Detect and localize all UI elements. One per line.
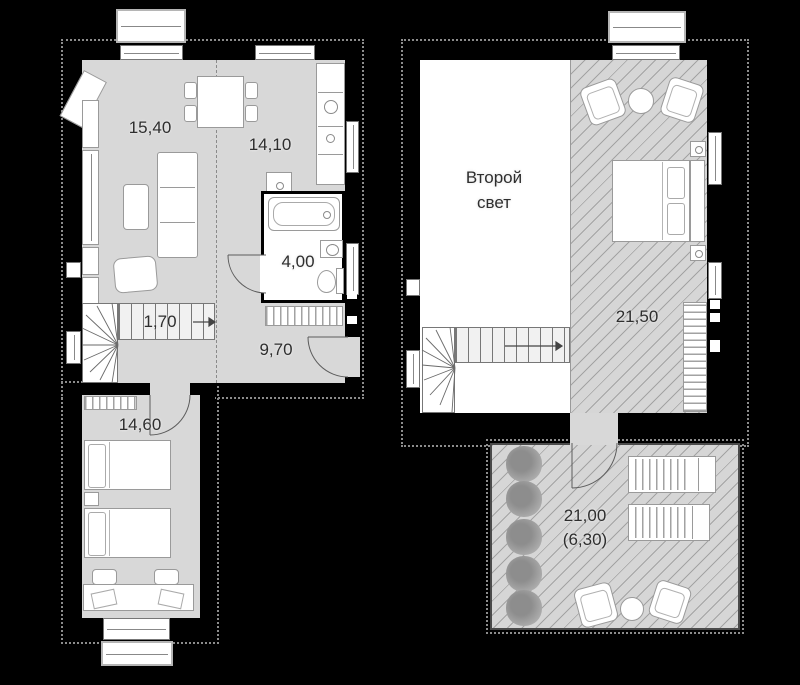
wardrobe-icon [683,302,707,412]
area-label-bathroom: 4,00 [281,252,314,272]
round-table-icon [628,88,654,114]
wall-vent [710,300,720,309]
area-label-living: 15,40 [129,118,172,138]
sofa-icon [157,152,198,258]
plant-icon [506,446,542,482]
floor2-left-window-2 [406,350,420,388]
bathroom-window [346,243,359,295]
floor2-left-window-1 [406,279,420,296]
hall-wardrobe-icon [265,306,343,326]
bed-icon [84,508,171,558]
area-label-terrace-secondary: (6,30) [563,530,607,550]
headboard-icon [690,160,705,242]
wall-vent [710,340,720,352]
double-bed-icon [612,160,690,242]
kitchen-top-window [255,45,315,60]
bed-icon [84,440,171,490]
floor2-right-window-2 [708,262,722,299]
kitchen-side-window [346,121,359,173]
dining-chair-icon [184,82,197,99]
desk-chair-icon [92,569,117,585]
dining-table-icon [197,76,244,128]
wall-vent [710,313,720,322]
stairs-winder-area [82,303,118,383]
window-bay-top [116,9,186,43]
area-label-bedroom: 14,60 [119,415,162,435]
void-label-line1: Второй [466,168,522,188]
plant-icon [506,519,542,555]
nightstand-icon [690,245,706,261]
dining-chair-icon [184,105,197,122]
area-label-terrace: 21,00 [564,506,607,526]
wall-vent [347,291,357,299]
cabinet-icon [82,100,99,148]
void-room-boundary [570,60,571,413]
floor2-right-window-1 [708,132,722,185]
area-label-stairs: 1,70 [143,312,176,332]
dining-chair-icon [245,82,258,99]
tall-cabinet-icon [82,150,99,245]
toilet-icon [317,270,336,293]
entrance-door-opening [345,337,360,377]
nightstand-icon [84,492,99,506]
stairs2-winder-area [422,327,455,413]
plant-icon [506,556,542,592]
dining-chair-icon [245,105,258,122]
kitchen-counter-icon [316,63,345,185]
stairs2-flight-icon [455,327,570,363]
round-table-icon [620,597,644,621]
window-bay-bottom [101,641,173,666]
terrace-door-opening [570,413,618,445]
bedroom-door-opening [150,383,190,395]
stairs-small-window [66,331,81,364]
area-label-kitchen: 14,10 [249,135,292,155]
desk-icon [83,584,194,611]
living-window [120,45,183,60]
void-label-line2: свет [477,193,511,213]
area-label-floor2-room: 21,50 [616,307,659,327]
bedroom-wardrobe-icon [84,396,137,410]
nightstand-icon [690,141,706,157]
plant-icon [506,481,542,517]
floorplan-canvas: 15,40 14,10 4,00 1,70 9,70 14,60 Второй … [0,0,800,685]
armchair-icon [113,255,159,294]
floor2-top-window [612,45,680,60]
area-label-hallway: 9,70 [259,340,292,360]
bedroom-window [103,618,170,640]
living-small-window-1 [66,262,81,278]
cabinet-icon [82,247,99,275]
toilet-tank-icon [336,268,344,294]
window-bay-floor2 [608,11,686,43]
bathroom-door-opening [260,255,265,293]
bathtub-icon [268,197,340,231]
plant-icon [506,590,542,626]
wall-vent [347,316,357,324]
cabinet-icon [82,277,99,305]
coffee-table-icon [123,184,149,230]
desk-chair-icon [154,569,179,585]
sun-lounger-icon [628,456,716,493]
sink-icon [320,240,343,258]
sun-lounger-icon [628,504,710,541]
